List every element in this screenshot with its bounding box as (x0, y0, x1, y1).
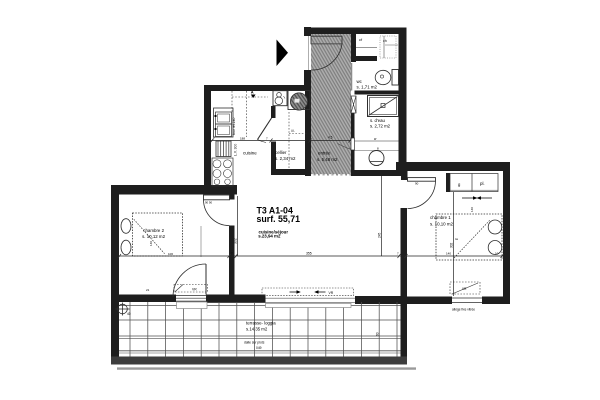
svg-text:ch: ch (383, 39, 387, 43)
svg-text:tw: tw (455, 237, 459, 241)
svg-text:surf. 55,71: surf. 55,71 (257, 214, 301, 224)
svg-text:s.23,94 m2: s.23,94 m2 (258, 234, 281, 239)
svg-text:049: 049 (256, 346, 262, 350)
svg-text:s.14,35 m2: s.14,35 m2 (246, 327, 268, 332)
svg-text:7: 7 (266, 136, 268, 140)
svg-text:VR: VR (462, 287, 467, 291)
svg-text:90 90: 90 90 (205, 201, 212, 205)
svg-text:8: 8 (377, 147, 379, 151)
svg-text:chambre 1: chambre 1 (430, 215, 451, 220)
svg-text:pl.: pl. (480, 181, 485, 186)
svg-text:cf: cf (359, 37, 363, 42)
svg-text:s. 1,71 m2: s. 1,71 m2 (357, 84, 378, 89)
svg-text:VR: VR (329, 291, 334, 295)
svg-text:entrée: entrée (318, 151, 331, 156)
svg-text:10: 10 (495, 252, 499, 256)
svg-text:g: g (458, 182, 461, 187)
svg-text:7: 7 (397, 252, 399, 256)
svg-text:140: 140 (446, 252, 451, 256)
svg-text:terrasse- loggia: terrasse- loggia (246, 321, 276, 326)
svg-text:s. 2,72 m2: s. 2,72 m2 (370, 124, 391, 129)
svg-text:302: 302 (449, 242, 453, 248)
svg-text:140: 140 (149, 241, 153, 246)
svg-text:A: A (251, 90, 254, 95)
svg-text:ΔL: ΔL (291, 129, 295, 133)
svg-text:allège fixe vitrée: allège fixe vitrée (452, 308, 475, 312)
svg-text:21: 21 (146, 288, 150, 292)
svg-text:302: 302 (233, 238, 237, 244)
svg-text:s. 2,34 m2: s. 2,34 m2 (275, 156, 296, 161)
svg-text:four réf 240: four réf 240 (232, 118, 236, 135)
svg-text:s. d'eau: s. d'eau (370, 118, 386, 123)
svg-text:245: 245 (377, 232, 381, 238)
svg-text:cuisine: cuisine (243, 151, 257, 156)
svg-text:s. 10,10 m2: s. 10,10 m2 (430, 222, 453, 227)
svg-text:90: 90 (415, 181, 419, 185)
svg-text:s. 5,48 m2: s. 5,48 m2 (317, 157, 338, 162)
svg-text:188: 188 (240, 136, 245, 140)
svg-text:wc: wc (357, 79, 363, 84)
svg-text:VR: VR (192, 288, 197, 292)
svg-text:140: 140 (470, 207, 474, 212)
svg-text:dalle sur plots: dalle sur plots (244, 341, 265, 345)
svg-text:355: 355 (306, 251, 312, 255)
svg-text:40: 40 (127, 312, 131, 316)
svg-text:chambre 2: chambre 2 (143, 228, 164, 233)
svg-text:s. 10,12 m2: s. 10,12 m2 (142, 234, 165, 239)
svg-text:106: 106 (168, 252, 173, 256)
svg-text:cellier: cellier (275, 150, 287, 155)
svg-text:4,5: 4,5 (328, 136, 333, 140)
svg-text:60: 60 (376, 332, 380, 336)
svg-text:L.V. 300: L.V. 300 (234, 144, 238, 156)
svg-text:w: w (374, 137, 377, 141)
